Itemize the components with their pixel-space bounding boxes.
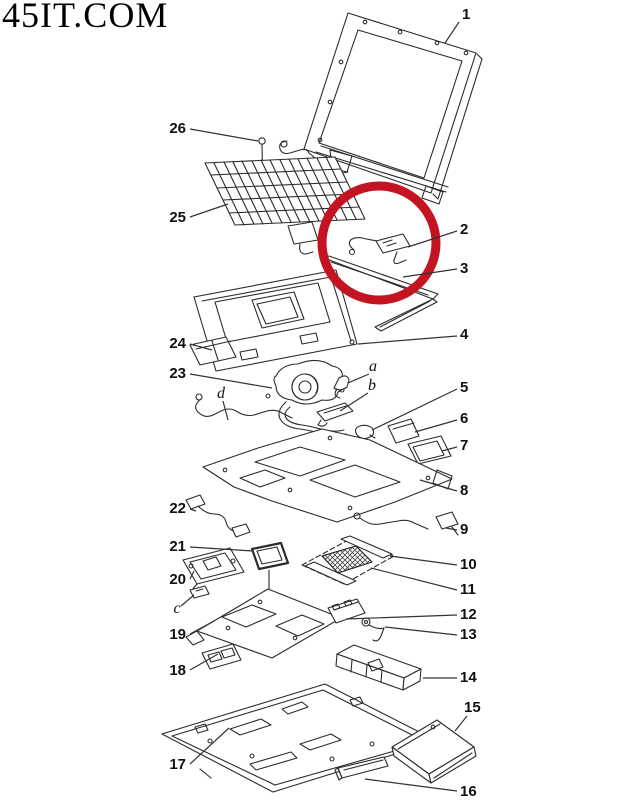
- callout-label-20: 20: [169, 571, 186, 588]
- callout-label-1: 1: [462, 6, 470, 23]
- callout-label-9: 9: [460, 521, 468, 538]
- leader-line-d: [223, 401, 228, 420]
- callout-label-8: 8: [460, 482, 468, 499]
- callout-label-c: c: [173, 600, 180, 617]
- part-10-11-socket-kit: [302, 536, 394, 585]
- part-6-card: [388, 419, 419, 443]
- part-20-card-cage: [183, 548, 244, 590]
- part-13-cable-lug: [362, 618, 384, 641]
- laptop-exploded-view-diagram: 1234567891011121314151617181920212223242…: [0, 0, 643, 808]
- callout-label-14: 14: [460, 669, 477, 686]
- callout-label-26: 26: [169, 120, 186, 137]
- part-d-cable: [196, 394, 292, 418]
- leader-line-26: [190, 129, 258, 141]
- leader-line-12: [346, 615, 457, 619]
- leader-line-9: [446, 528, 457, 530]
- callout-label-4: 4: [460, 326, 469, 343]
- exploded-parts-diagram-page: 45IT.COM: [0, 0, 643, 808]
- callout-label-25: 25: [169, 209, 186, 226]
- leader-line-25: [190, 204, 228, 217]
- part-17-base-cover: [162, 684, 437, 792]
- leader-line-a: [348, 374, 369, 383]
- callout-label-b: b: [368, 377, 376, 394]
- callout-label-2: 2: [460, 221, 468, 238]
- part-22-cable-assembly: [186, 495, 250, 537]
- callout-label-17: 17: [169, 756, 186, 773]
- callout-label-24: 24: [169, 335, 186, 352]
- callout-label-d: d: [217, 385, 226, 402]
- callout-label-7: 7: [460, 437, 468, 454]
- callout-label-18: 18: [169, 662, 186, 679]
- callout-label-6: 6: [460, 410, 468, 427]
- leader-line-6: [415, 420, 457, 432]
- part-14-battery: [336, 645, 421, 690]
- leader-line-10: [390, 556, 457, 565]
- callout-label-21: 21: [169, 538, 186, 555]
- leader-line-13: [385, 627, 457, 635]
- callout-label-23: 23: [169, 365, 186, 382]
- part-9-cable-connector: [354, 512, 458, 535]
- leader-line-4: [358, 336, 457, 344]
- part-21-cpu: [252, 543, 288, 596]
- leader-line-b: [340, 393, 368, 411]
- callout-label-5: 5: [460, 379, 468, 396]
- leader-line-c: [181, 595, 194, 606]
- callout-label-16: 16: [460, 783, 477, 800]
- callout-label-a: a: [369, 358, 377, 375]
- callout-label-22: 22: [169, 500, 186, 517]
- leader-line-23: [190, 374, 272, 388]
- part-5-latch: [356, 425, 375, 438]
- part-18-memory-module: [202, 644, 241, 669]
- leader-line-11: [371, 568, 457, 590]
- leader-line-15: [455, 716, 467, 731]
- callout-label-11: 11: [460, 581, 476, 598]
- callout-label-13: 13: [460, 626, 477, 643]
- callout-label-15: 15: [464, 699, 481, 716]
- callout-label-12: 12: [460, 606, 477, 623]
- leader-line-1: [445, 22, 459, 43]
- leader-line-16: [365, 779, 457, 791]
- callout-label-10: 10: [460, 556, 477, 573]
- part-23-fan-assembly: [266, 360, 346, 435]
- callout-label-3: 3: [460, 260, 468, 277]
- leader-line-22: [190, 509, 196, 511]
- callout-label-19: 19: [169, 626, 186, 643]
- part-2-cable-module: [349, 234, 410, 264]
